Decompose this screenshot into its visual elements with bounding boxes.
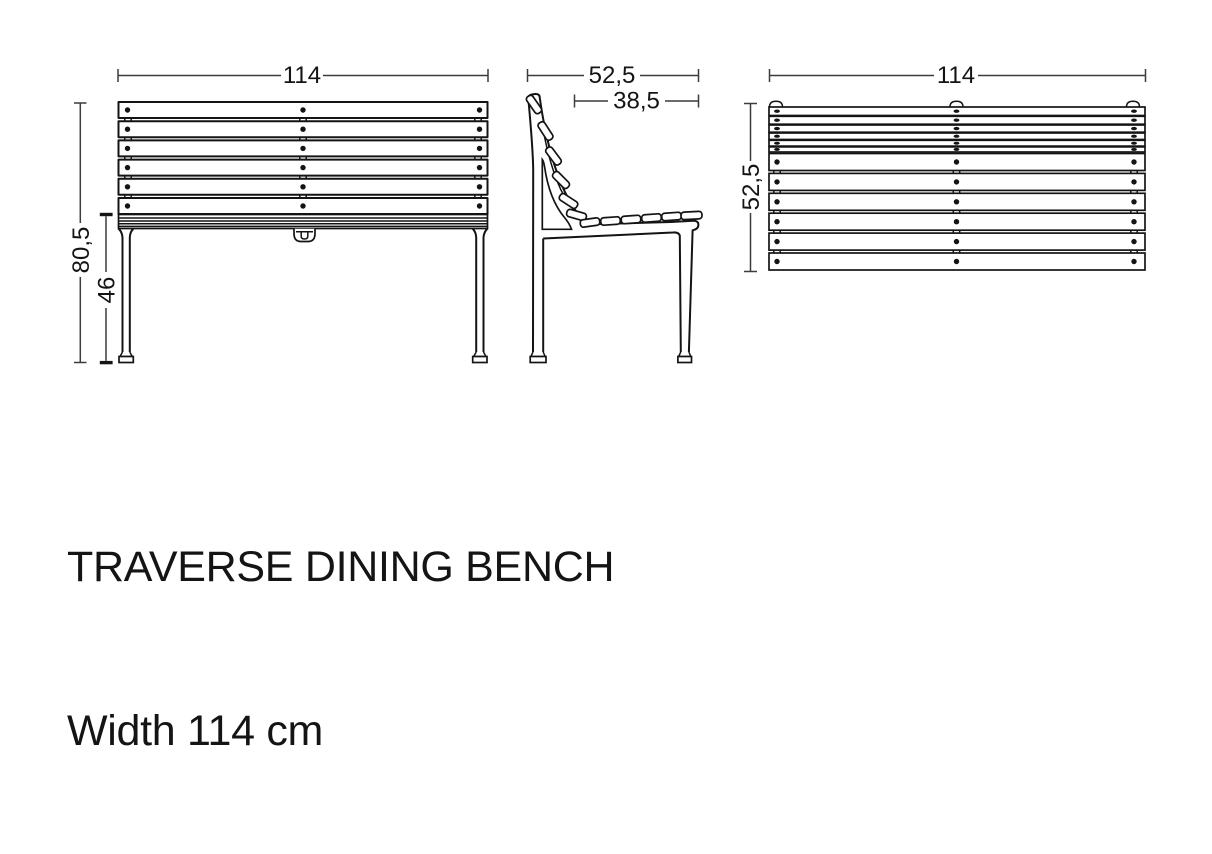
top-width-dimension: 114 bbox=[770, 62, 1146, 89]
front-center-bracket bbox=[294, 229, 315, 242]
top-depth-label: 52,5 bbox=[738, 164, 765, 211]
front-width-dimension: 114 bbox=[118, 62, 488, 89]
dimension-sheet: 114 bbox=[0, 0, 1212, 854]
side-seat-depth-dimension: 38,5 bbox=[575, 88, 699, 115]
spec-line-width: Width 114 cm bbox=[67, 704, 614, 759]
side-depth-label: 52,5 bbox=[589, 62, 636, 89]
front-width-label: 114 bbox=[283, 62, 321, 89]
side-depth-dimension: 52,5 bbox=[528, 62, 699, 89]
side-view: 52,5 38,5 bbox=[525, 62, 702, 363]
technical-drawing: 114 bbox=[0, 0, 1212, 420]
top-seat-slats bbox=[769, 154, 1145, 271]
side-feet bbox=[530, 352, 691, 363]
spec-block: TRAVERSE DINING BENCH Width 114 cm Depth… bbox=[67, 431, 614, 854]
front-height-dimension: 80,5 bbox=[68, 103, 95, 363]
front-back-slats bbox=[119, 102, 488, 214]
side-back-slats bbox=[525, 94, 587, 221]
top-post-bumps bbox=[770, 101, 1140, 107]
front-seat-rail bbox=[119, 215, 488, 229]
top-depth-dimension: 52,5 bbox=[738, 104, 765, 272]
top-view: 114 52,5 bbox=[738, 62, 1146, 272]
front-left-leg bbox=[119, 229, 134, 363]
front-view: 114 bbox=[68, 62, 488, 364]
front-right-leg bbox=[473, 229, 488, 363]
product-title: TRAVERSE DINING BENCH bbox=[67, 540, 614, 595]
front-height-label: 80,5 bbox=[68, 227, 95, 274]
side-seat-slats bbox=[580, 211, 702, 227]
front-seat-height-dimension: 46 bbox=[94, 213, 121, 364]
front-seat-height-label: 46 bbox=[94, 277, 121, 304]
top-width-label: 114 bbox=[937, 62, 975, 89]
side-seat-depth-label: 38,5 bbox=[613, 88, 660, 115]
